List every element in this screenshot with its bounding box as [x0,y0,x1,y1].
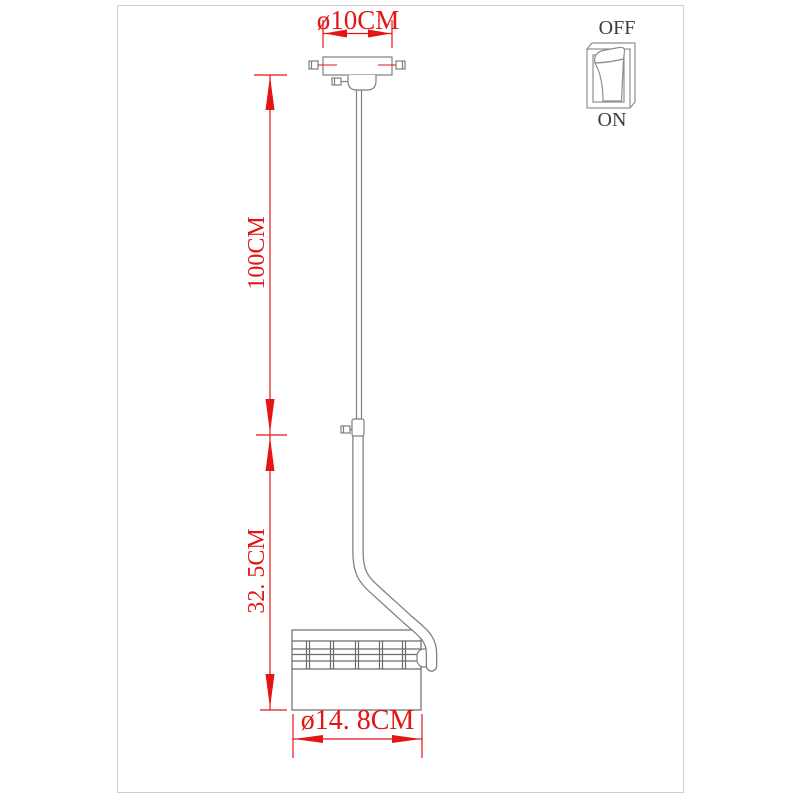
label-switch-off: OFF [582,18,652,38]
canopy-cup [332,75,376,90]
suspension-cable [357,88,362,422]
label-suspension-length: 100CM [245,216,269,289]
label-shade-diameter: ø14. 8CM [293,707,422,734]
mounting-screw-right [396,61,405,69]
lamp-technical-drawing [0,0,800,800]
cable-connector [341,419,364,436]
label-canopy-diameter: ø10CM [299,7,417,34]
label-switch-on: ON [582,110,642,130]
label-fixture-height: 32. 5CM [245,528,269,613]
mounting-screw-left [309,61,318,69]
ribbed-lamp-shade [292,630,421,710]
dim-vertical-chain [254,75,287,710]
lamp-drawing [292,57,433,710]
diagram-page: ø10CM 100CM 32. 5CM ø14. 8CM OFF ON [0,0,800,800]
rocker-switch-icon [587,43,635,108]
ceiling-plate [309,57,405,75]
